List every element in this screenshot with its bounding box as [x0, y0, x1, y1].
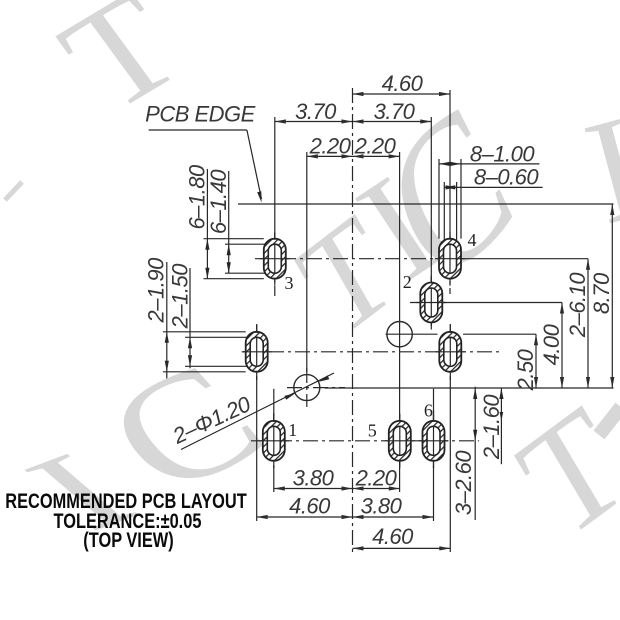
svg-text:2–1.90: 2–1.90: [144, 257, 169, 324]
svg-text:6: 6: [424, 401, 433, 421]
svg-text:4.60: 4.60: [372, 524, 414, 549]
svg-text:3.80: 3.80: [293, 466, 335, 491]
svg-text:3.80: 3.80: [361, 494, 403, 519]
svg-text:2.20: 2.20: [309, 134, 352, 159]
svg-text:2–1.60: 2–1.60: [479, 394, 504, 461]
svg-text:2–1.50: 2–1.50: [168, 263, 193, 330]
svg-text:2.20: 2.20: [355, 466, 398, 491]
svg-text:8.70: 8.70: [589, 272, 614, 314]
svg-text:8–1.00: 8–1.00: [470, 142, 536, 167]
svg-text:(TOP VIEW): (TOP VIEW): [83, 528, 173, 551]
svg-text:3.70: 3.70: [295, 99, 337, 124]
svg-text:3.70: 3.70: [374, 99, 416, 124]
svg-text:5: 5: [368, 420, 377, 440]
svg-text:2.20: 2.20: [354, 134, 397, 159]
svg-text:4.60: 4.60: [382, 71, 424, 96]
svg-text:4.00: 4.00: [539, 323, 564, 365]
svg-text:8–0.60: 8–0.60: [474, 165, 540, 190]
svg-text:3: 3: [285, 273, 294, 293]
svg-text:PCB EDGE: PCB EDGE: [145, 102, 256, 127]
svg-text:2–6.10: 2–6.10: [565, 272, 590, 339]
svg-text:3–2.60: 3–2.60: [451, 450, 476, 516]
svg-text:2.50: 2.50: [513, 348, 538, 391]
svg-text:6–1.40: 6–1.40: [206, 169, 231, 235]
svg-text:4.60: 4.60: [289, 494, 331, 519]
svg-text:4: 4: [468, 230, 477, 250]
svg-text:1: 1: [288, 420, 297, 440]
svg-text:2: 2: [403, 272, 412, 292]
